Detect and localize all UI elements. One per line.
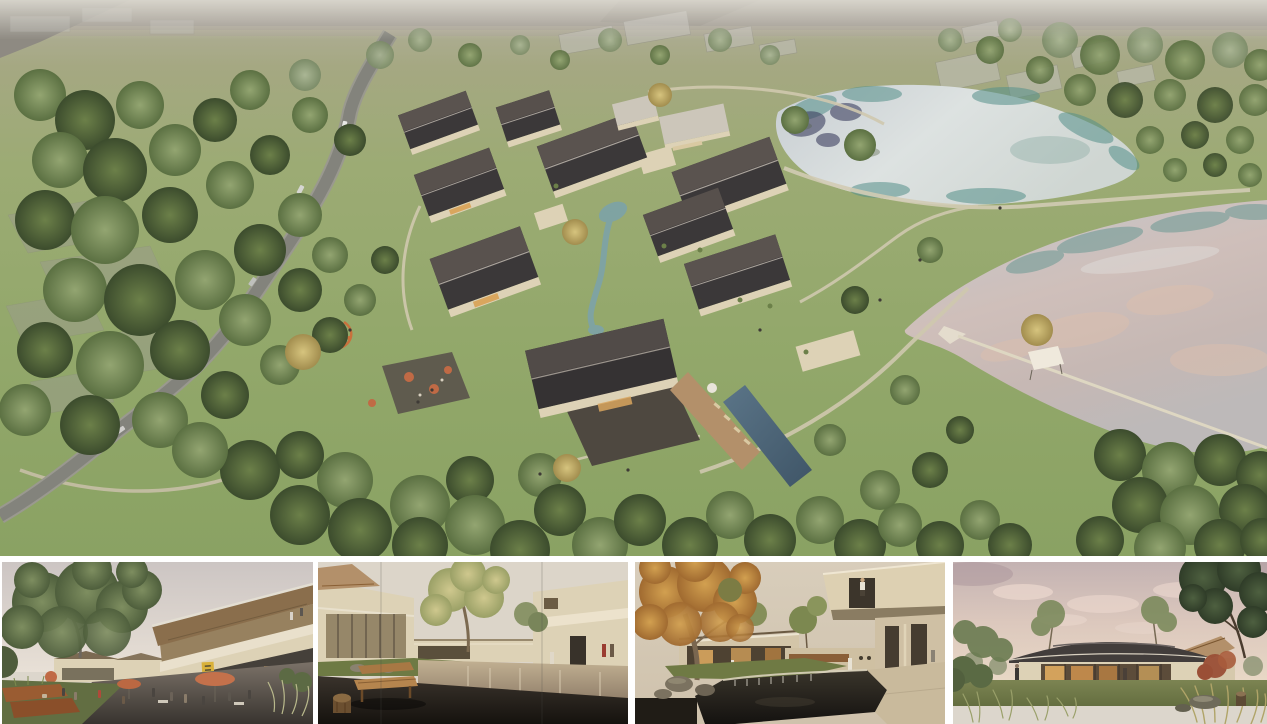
- balcony-person: [290, 612, 293, 620]
- street-plaza-rendering: [2, 562, 313, 724]
- person-red-coat: [602, 644, 606, 657]
- person-at-pond: [550, 652, 554, 664]
- atmospheric-haze: [0, 0, 1267, 160]
- balcony-person: [300, 608, 303, 616]
- person-outside: [1015, 664, 1019, 681]
- rendering-board: [0, 0, 1267, 724]
- courtyard-pond-rendering: [318, 562, 628, 724]
- person-inside: [1123, 668, 1127, 680]
- aerial-scene: [0, 0, 1267, 556]
- small-umbrella: [45, 671, 57, 683]
- autumn-waterfall-courtyard-rendering: [635, 562, 945, 724]
- terrace-person: [860, 578, 865, 596]
- background-buildings: [414, 640, 536, 662]
- passage-opening: [570, 636, 586, 666]
- log-stool: [333, 694, 351, 714]
- aerial-masterplan-rendering: [0, 0, 1267, 556]
- pool-umbrella: [707, 383, 717, 393]
- courtyard-pond-scene: [318, 562, 628, 724]
- person-brown-coat: [610, 644, 614, 657]
- dusk-pavilion-scene: [953, 562, 1267, 724]
- street-plaza-scene: [2, 562, 313, 724]
- person-by-pond: [848, 658, 852, 671]
- colonnade-person: [931, 650, 935, 662]
- autumn-courtyard-scene: [635, 562, 945, 724]
- dusk-pavilion-rendering: [953, 562, 1267, 724]
